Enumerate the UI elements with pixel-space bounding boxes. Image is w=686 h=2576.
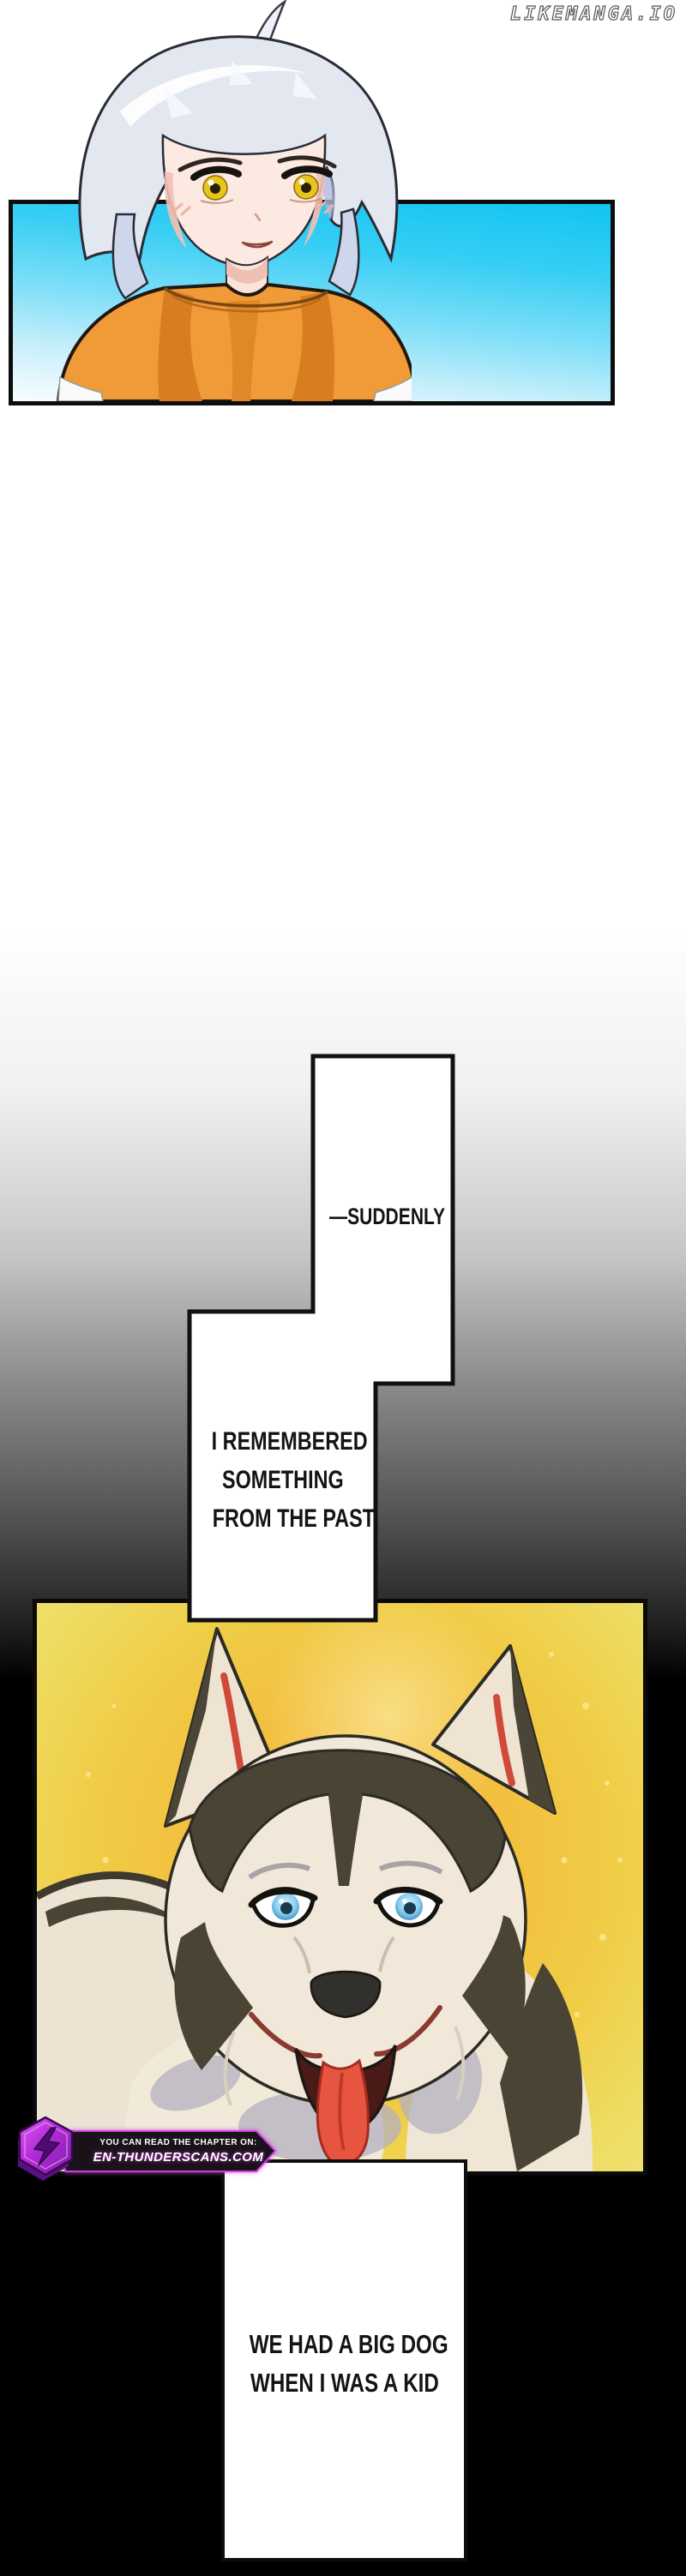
face [163, 135, 325, 266]
badge-read-on-label: YOU CAN READ THE CHAPTER ON: [75, 2138, 281, 2147]
site-watermark: LIKEMANGA.IO [510, 3, 677, 25]
narration-remembered-line1: I REMEMBERED [212, 1422, 368, 1461]
boy-character-illustration [34, 0, 412, 401]
badge-graphics [14, 2114, 288, 2183]
narration-boxes-shape [0, 1052, 686, 1626]
narration-bigdog: WE HAD A BIG DOG WHEN I WAS A KID [221, 2325, 467, 2402]
husky-dog-illustration [37, 1603, 643, 2171]
scanlation-badge: YOU CAN READ THE CHAPTER ON: EN-THUNDERS… [14, 2114, 288, 2183]
narration-remembered: I REMEMBERED SOMETHING FROM THE PAST [190, 1422, 376, 1538]
panel-dog [33, 1599, 647, 2176]
badge-site-name: EN-THUNDERSCANS.COM [75, 2150, 281, 2165]
narration-remembered-line3: FROM THE PAST [213, 1499, 375, 1538]
narration-suddenly: —SUDDENLY [313, 1204, 453, 1229]
manga-page: LIKEMANGA.IO [0, 0, 686, 2576]
narration-remembered-line2: SOMETHING [222, 1461, 344, 1499]
narration-suddenly-text: —SUDDENLY [329, 1204, 445, 1229]
narration-bigdog-line2: WHEN I WAS A KID [250, 2363, 439, 2402]
narration-bigdog-line1: WE HAD A BIG DOG [250, 2325, 448, 2363]
